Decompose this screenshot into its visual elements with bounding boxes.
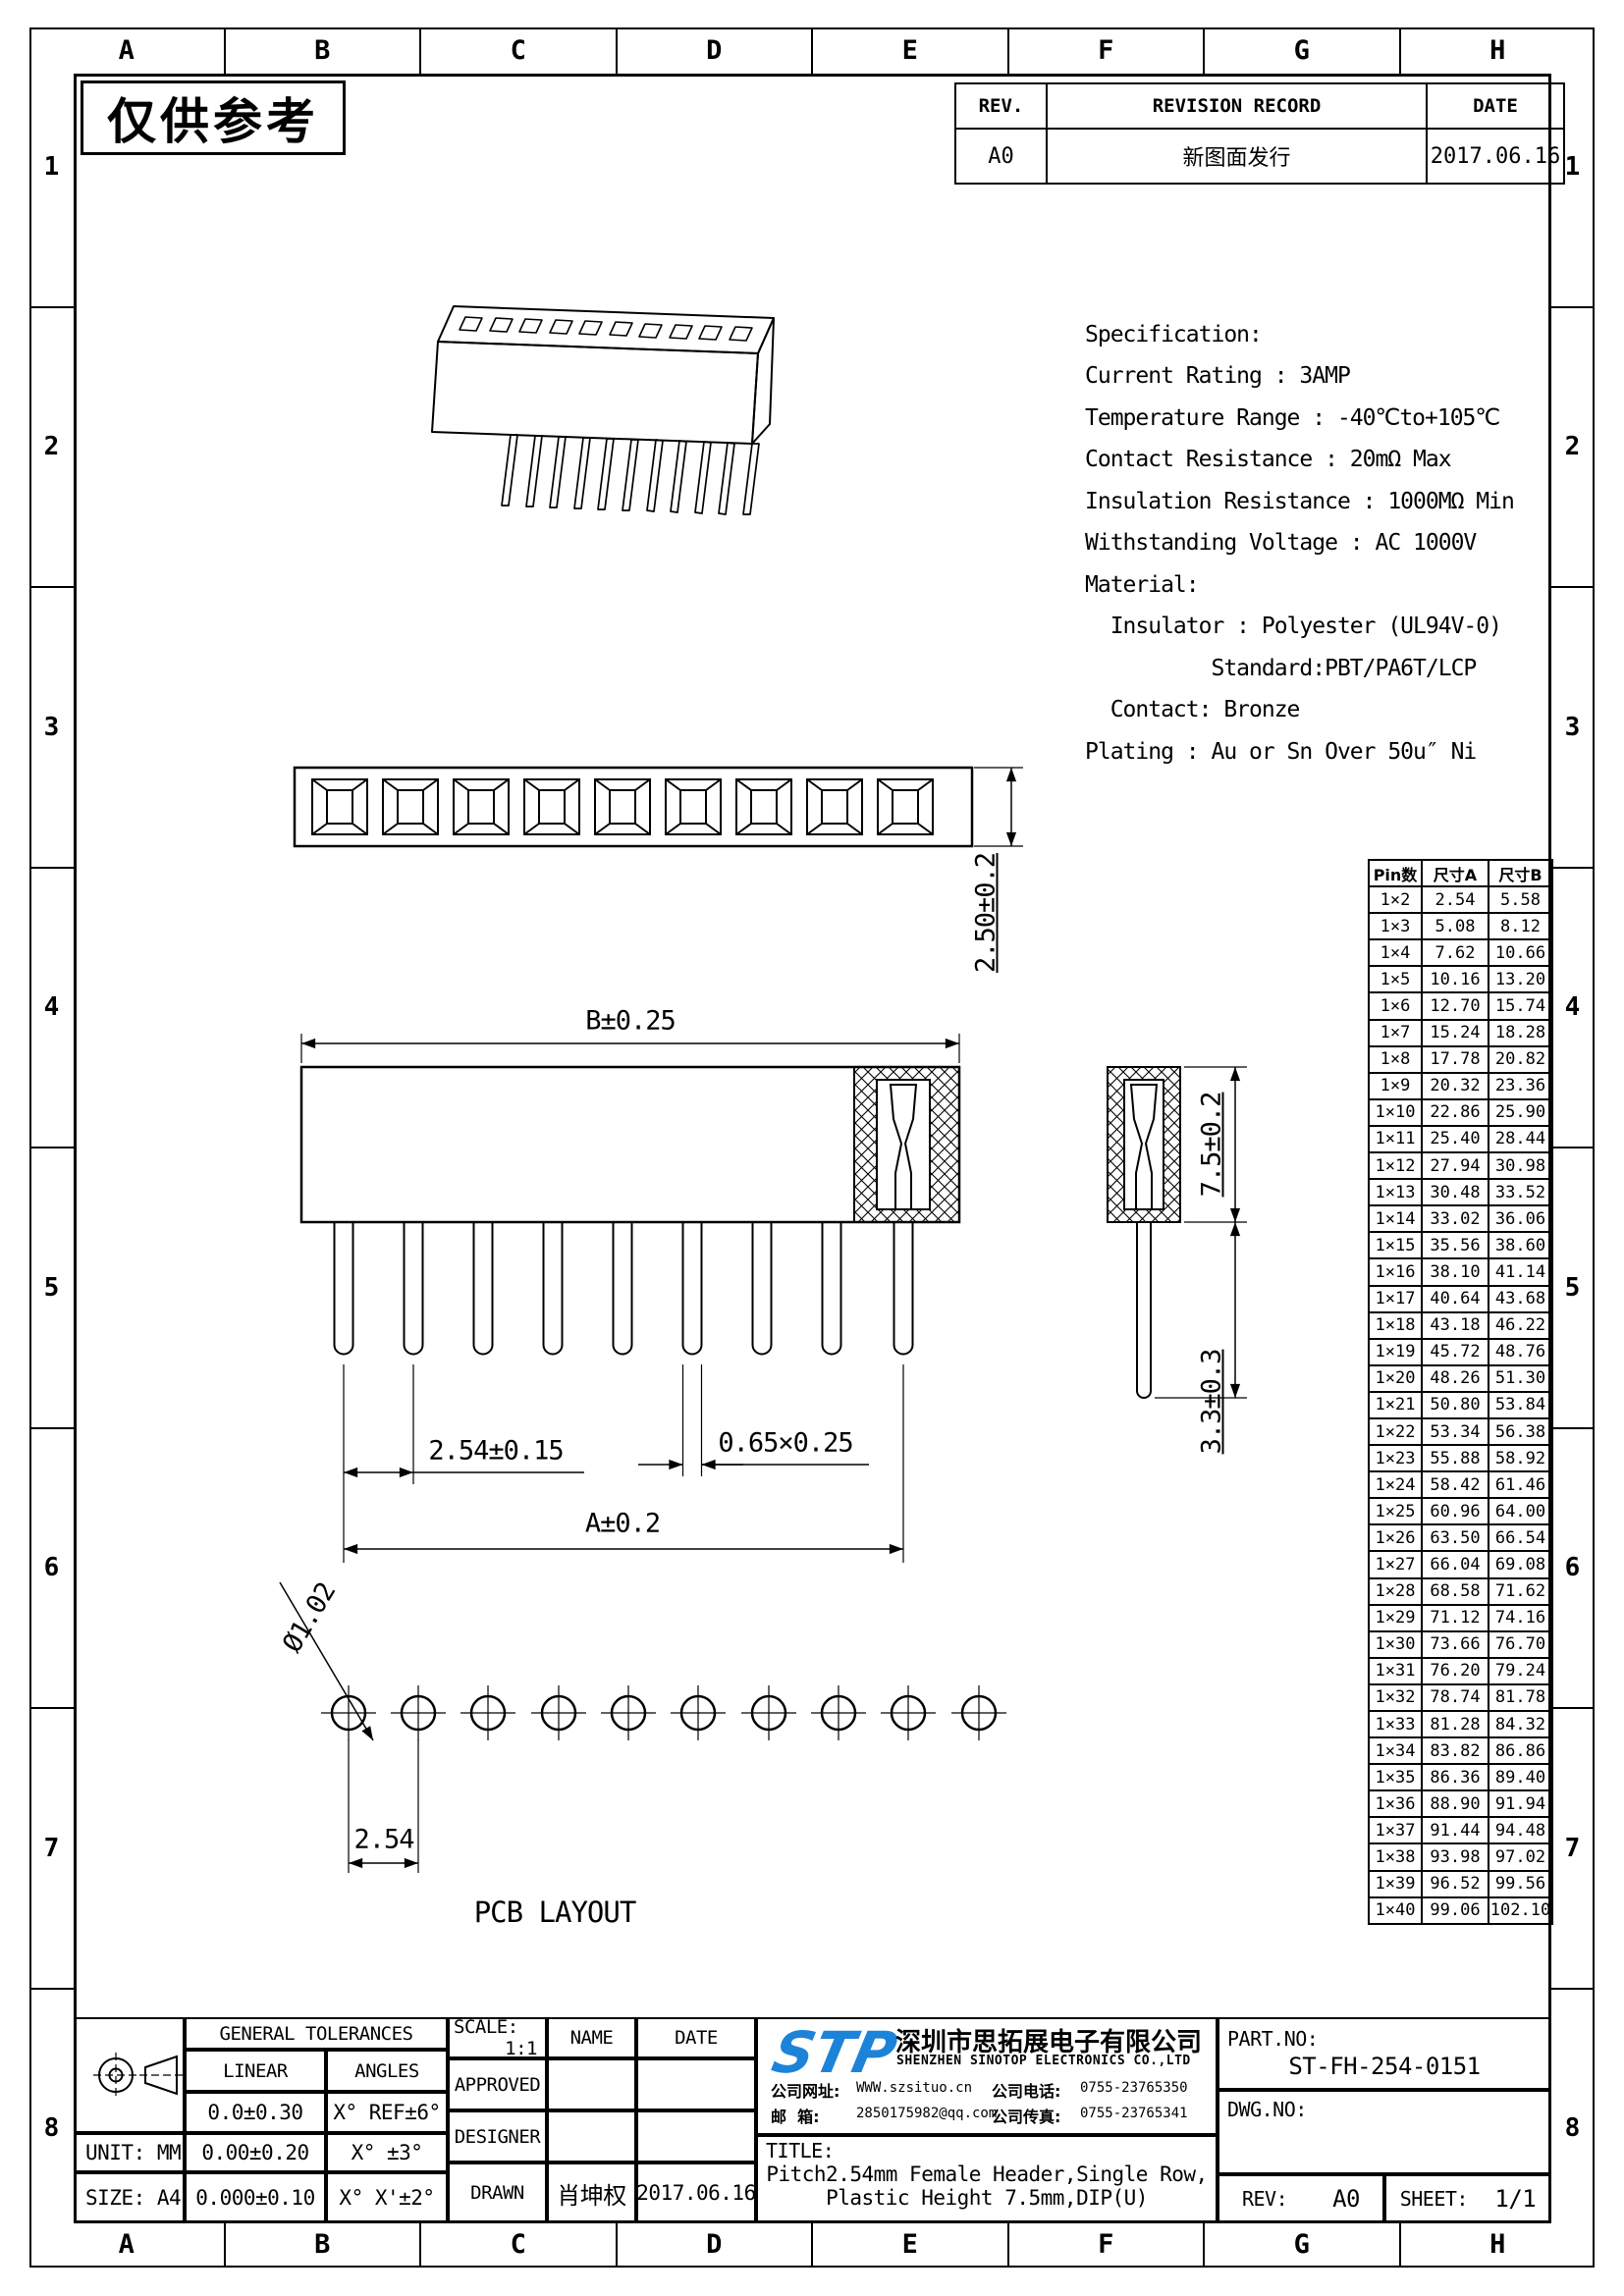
tolerance-angle-2: X° ±3° — [326, 2133, 448, 2172]
unit-cell: UNIT: MM — [74, 2133, 185, 2172]
pin-table-row: 1×920.3223.36 — [1369, 1073, 1552, 1099]
drawn-date: 2017.06.16 — [636, 2163, 756, 2223]
dim-pitch: 2.54±0.15 — [428, 1436, 563, 1467]
fax-label: 公司传真: — [992, 2104, 1060, 2127]
pin-table-row: 1×2766.0469.08 — [1369, 1551, 1552, 1577]
pin-table-row: 1×510.1613.20 — [1369, 966, 1552, 992]
pin-table-row: 1×1945.7248.76 — [1369, 1339, 1552, 1365]
partno-label: PART.NO: — [1227, 2027, 1318, 2051]
tolerance-linear-1: 0.0±0.30 — [185, 2092, 326, 2133]
pin-table-row: 1×3483.8286.86 — [1369, 1737, 1552, 1764]
pin-table-row: 1×1125.4028.44 — [1369, 1126, 1552, 1152]
rev-cell: REV: A0 — [1218, 2174, 1384, 2223]
pin-table-row: 1×1330.4833.52 — [1369, 1179, 1552, 1205]
pin-table-row: 1×22.545.58 — [1369, 886, 1552, 913]
pin-table-row: 1×2355.8858.92 — [1369, 1445, 1552, 1471]
website-label: 公司网址: — [771, 2078, 839, 2102]
approved-label: APPROVED — [448, 2058, 547, 2110]
pin-table-row: 1×817.7820.82 — [1369, 1046, 1552, 1073]
pin-table-row: 1×4099.06102.10 — [1369, 1897, 1552, 1924]
date-header: DATE — [636, 2017, 756, 2058]
pin-table-row: 1×2253.3456.38 — [1369, 1418, 1552, 1445]
partno-value: ST-FH-254-0151 — [1288, 2053, 1480, 2080]
designer-label: DESIGNER — [448, 2110, 547, 2163]
drawn-label: DRAWN — [448, 2163, 547, 2223]
pin-table-row: 1×3688.9091.94 — [1369, 1790, 1552, 1817]
projection-symbol-cell — [74, 2017, 185, 2133]
pin-table-row: 1×1843.1846.22 — [1369, 1312, 1552, 1339]
pin-table-row: 1×2048.2651.30 — [1369, 1365, 1552, 1392]
pin-table-row: 1×1740.6443.68 — [1369, 1286, 1552, 1312]
front-view — [301, 1034, 959, 1563]
dim-overall-a: A±0.2 — [585, 1509, 660, 1539]
approved-date-cell — [636, 2058, 756, 2110]
isometric-view — [432, 306, 774, 514]
pin-table-row: 1×1638.1041.14 — [1369, 1258, 1552, 1285]
email-label: 邮 箱: — [771, 2104, 820, 2127]
pin-table-row: 1×1227.9430.98 — [1369, 1152, 1552, 1179]
designer-date-cell — [636, 2110, 756, 2163]
scale-value: 1:1 — [505, 2038, 545, 2059]
dim-pin-section: 0.65×0.25 — [718, 1428, 852, 1459]
tolerance-linear-2: 0.00±0.20 — [185, 2133, 326, 2172]
pin-table-row: 1×3893.9897.02 — [1369, 1843, 1552, 1870]
pin-table-row: 1×2663.5066.54 — [1369, 1524, 1552, 1551]
sheet-value: 1/1 — [1494, 2185, 1536, 2213]
approved-name-cell — [547, 2058, 636, 2110]
stp-logo: STP — [768, 2024, 901, 2081]
pin-table-row: 1×2868.5871.62 — [1369, 1578, 1552, 1605]
sheet-cell: SHEET: 1/1 — [1384, 2174, 1551, 2223]
title-label: TITLE: — [766, 2139, 834, 2163]
title-cell: TITLE: Pitch2.54mm Female Header,Single … — [756, 2135, 1218, 2223]
dim-top-view-height: 2.50±0.2 — [971, 853, 1001, 973]
drawn-name: 肖坤权 — [547, 2163, 636, 2223]
dim-hole-pitch: 2.54 — [353, 1825, 413, 1855]
tolerance-angle-1: X° REF±6° — [326, 2092, 448, 2133]
scale-label: SCALE: — [454, 2016, 518, 2038]
dim-pin-length: 3.3±0.3 — [1197, 1350, 1227, 1455]
pin-table-header-row: Pin数 尺寸A 尺寸B — [1369, 860, 1552, 886]
company-name-en: SHENZHEN SINOTOP ELECTRONICS CO.,LTD — [896, 2054, 1191, 2068]
pin-table-row: 1×612.7015.74 — [1369, 992, 1552, 1019]
pin-table-row: 1×1433.0236.06 — [1369, 1205, 1552, 1232]
rev-label: REV: — [1242, 2187, 1287, 2211]
dim-body-width: B±0.25 — [585, 1006, 676, 1037]
dwgno-cell: DWG.NO: — [1218, 2090, 1551, 2174]
linear-header: LINEAR — [185, 2050, 326, 2092]
fax-value: 0755-23765341 — [1080, 2106, 1188, 2121]
tolerance-linear-3: 0.000±0.10 — [185, 2172, 326, 2223]
general-tolerances-title: GENERAL TOLERANCES — [185, 2017, 448, 2050]
angles-header: ANGLES — [326, 2050, 448, 2092]
phone-label: 公司电话: — [992, 2078, 1060, 2102]
drawing-title-line2: Plastic Height 7.5mm,DIP(U) — [826, 2186, 1148, 2210]
pin-table-row: 1×3176.2079.24 — [1369, 1658, 1552, 1684]
website-value: WWW.szsituo.cn — [856, 2080, 972, 2096]
pin-table-row: 1×3381.2884.32 — [1369, 1711, 1552, 1737]
pin-table-row: 1×3073.6676.70 — [1369, 1631, 1552, 1658]
pin-table-row: 1×1535.5638.60 — [1369, 1232, 1552, 1258]
dim-insulator-height: 7.5±0.2 — [1197, 1093, 1227, 1198]
pin-table-row: 1×2560.9664.00 — [1369, 1498, 1552, 1524]
pin-table-row: 1×2150.8053.84 — [1369, 1392, 1552, 1418]
drawing-sheet: ABCDEFGH ABCDEFGH 12345678 12345678 仅供参考… — [0, 0, 1624, 2296]
rev-value: A0 — [1332, 2185, 1360, 2213]
pin-count-dimension-table: Pin数 尺寸A 尺寸B 1×22.545.58 1×35.088.12 1×4… — [1368, 859, 1553, 1925]
phone-value: 0755-23765350 — [1080, 2080, 1188, 2096]
pcb-layout-label: PCB LAYOUT — [474, 1896, 636, 1929]
pin-table-row: 1×2971.1274.16 — [1369, 1605, 1552, 1631]
pin-table-row: 1×3278.7481.78 — [1369, 1684, 1552, 1711]
pin-table-row: 1×3586.3689.40 — [1369, 1764, 1552, 1790]
pin-table-row: 1×3791.4494.48 — [1369, 1817, 1552, 1843]
pin-table-row: 1×1022.8625.90 — [1369, 1099, 1552, 1126]
size-cell: SIZE: A4 — [74, 2172, 185, 2223]
sheet-label: SHEET: — [1400, 2187, 1468, 2211]
partno-cell: PART.NO: ST-FH-254-0151 — [1218, 2017, 1551, 2090]
scale-cell: SCALE: 1:1 — [448, 2017, 547, 2058]
email-value: 2850175982@qq.com — [856, 2106, 997, 2121]
pin-table-row: 1×47.6210.66 — [1369, 939, 1552, 966]
pin-table-row: 1×715.2418.28 — [1369, 1020, 1552, 1046]
drawing-title-line1: Pitch2.54mm Female Header,Single Row, — [766, 2163, 1207, 2186]
tolerance-angle-3: X° X'±2° — [326, 2172, 448, 2223]
name-header: NAME — [547, 2017, 636, 2058]
designer-name-cell — [547, 2110, 636, 2163]
pin-table-row: 1×3996.5299.56 — [1369, 1871, 1552, 1897]
pin-table-row: 1×2458.4261.46 — [1369, 1471, 1552, 1498]
pin-table-row: 1×35.088.12 — [1369, 913, 1552, 939]
top-view — [295, 768, 1023, 846]
